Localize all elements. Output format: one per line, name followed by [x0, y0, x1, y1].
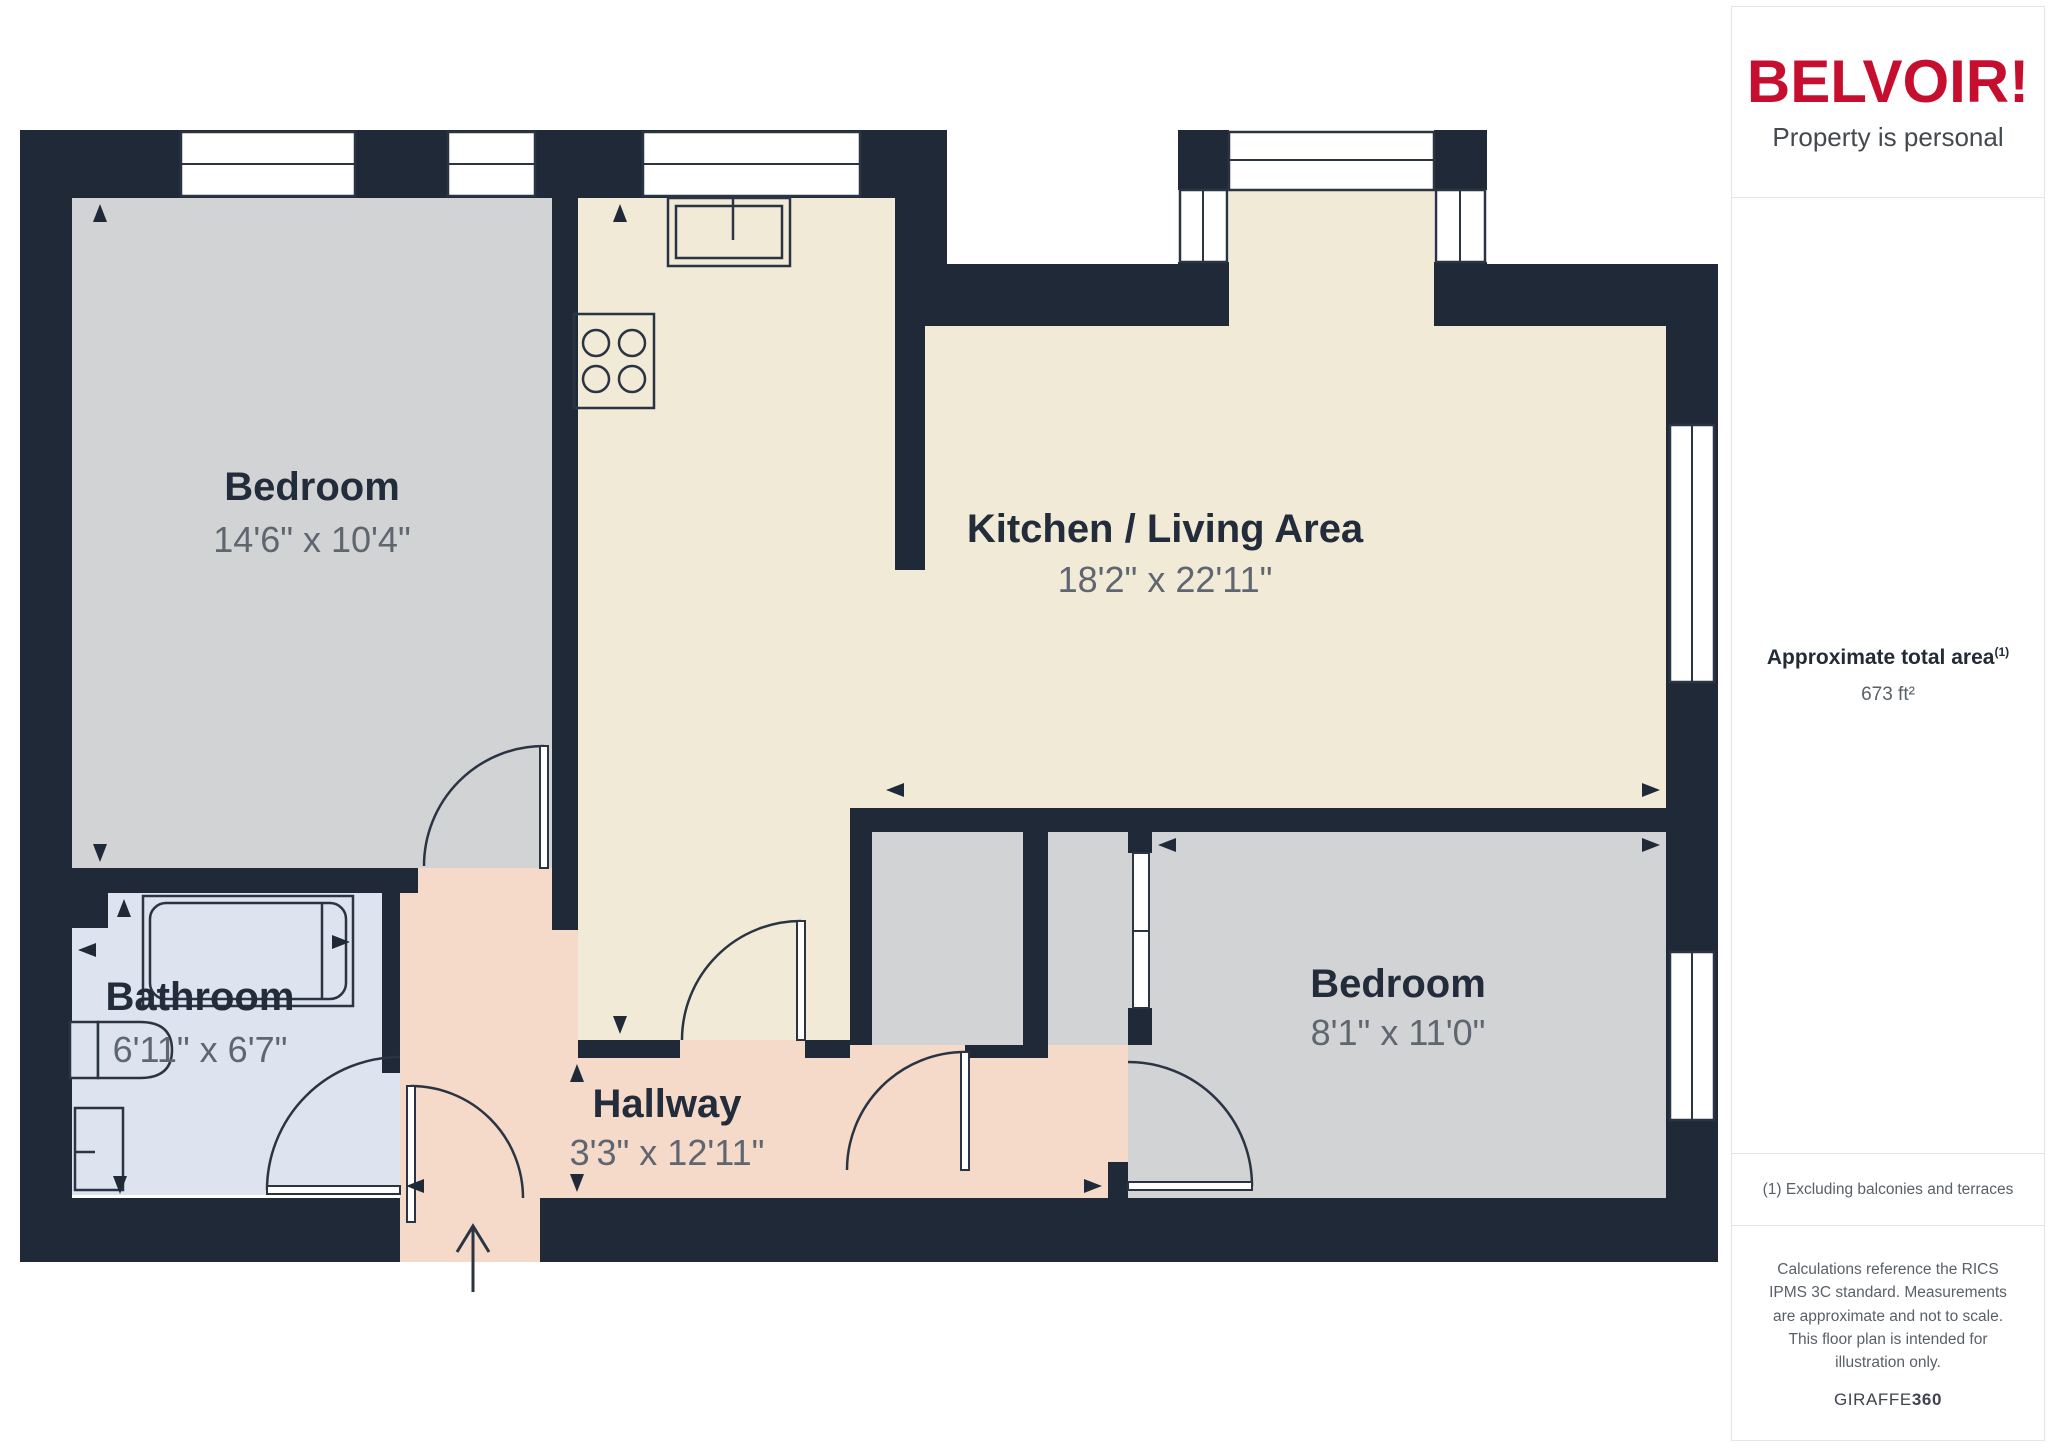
brand-tagline: Property is personal — [1772, 122, 2003, 153]
window-bedroom-1-right — [448, 132, 535, 196]
logo-block: BELVOIR! Property is personal — [1732, 7, 2044, 198]
branding-sidebar: BELVOIR! Property is personal Approximat… — [1731, 6, 2045, 1441]
giraffe360-logo: GIRAFFE360 — [1762, 1390, 2014, 1410]
room-label-bedroom-2: Bedroom — [1310, 962, 1486, 1006]
area-footnote-marker: (1) — [1994, 645, 2009, 659]
room-dims-hallway: 3'3" x 12'11" — [570, 1132, 765, 1173]
belvoir-logo: BELVOIR! — [1747, 52, 2029, 112]
window-bedroom-2-right — [1670, 952, 1714, 1120]
window-bay-side-right — [1436, 190, 1485, 262]
room-dims-bathroom: 6'11" x 6'7" — [113, 1029, 288, 1070]
window-living-right — [1670, 425, 1714, 682]
sliding-door-bedroom-2 — [1133, 853, 1149, 1008]
footnote: (1) Excluding balconies and terraces — [1732, 1153, 2044, 1225]
room-label-hallway: Hallway — [593, 1082, 743, 1126]
room-label-bedroom-1: Bedroom — [224, 465, 400, 509]
window-bedroom-1-left — [181, 132, 355, 196]
window-kitchen — [643, 132, 860, 196]
room-dims-bedroom-1: 14'6" x 10'4" — [213, 519, 410, 560]
disclaimer-text: Calculations reference the RICS IPMS 3C … — [1762, 1258, 2014, 1374]
closet-1-floor — [872, 832, 1023, 1045]
closet-2-floor — [1048, 832, 1128, 1045]
window-bay-top — [1229, 132, 1434, 190]
footer: Calculations reference the RICS IPMS 3C … — [1732, 1225, 2044, 1440]
room-label-kitchen-living: Kitchen / Living Area — [967, 507, 1364, 551]
window-bay-side-left — [1180, 190, 1227, 262]
room-dims-bedroom-2: 8'1" x 11'0" — [1311, 1012, 1486, 1053]
area-value: 673 ft² — [1861, 684, 1915, 706]
area-summary: Approximate total area(1) 673 ft² — [1732, 198, 2044, 1153]
room-dims-kitchen-living: 18'2" x 22'11" — [1058, 559, 1273, 600]
area-label: Approximate total area(1) — [1767, 645, 2009, 670]
room-label-bathroom: Bathroom — [106, 975, 295, 1019]
